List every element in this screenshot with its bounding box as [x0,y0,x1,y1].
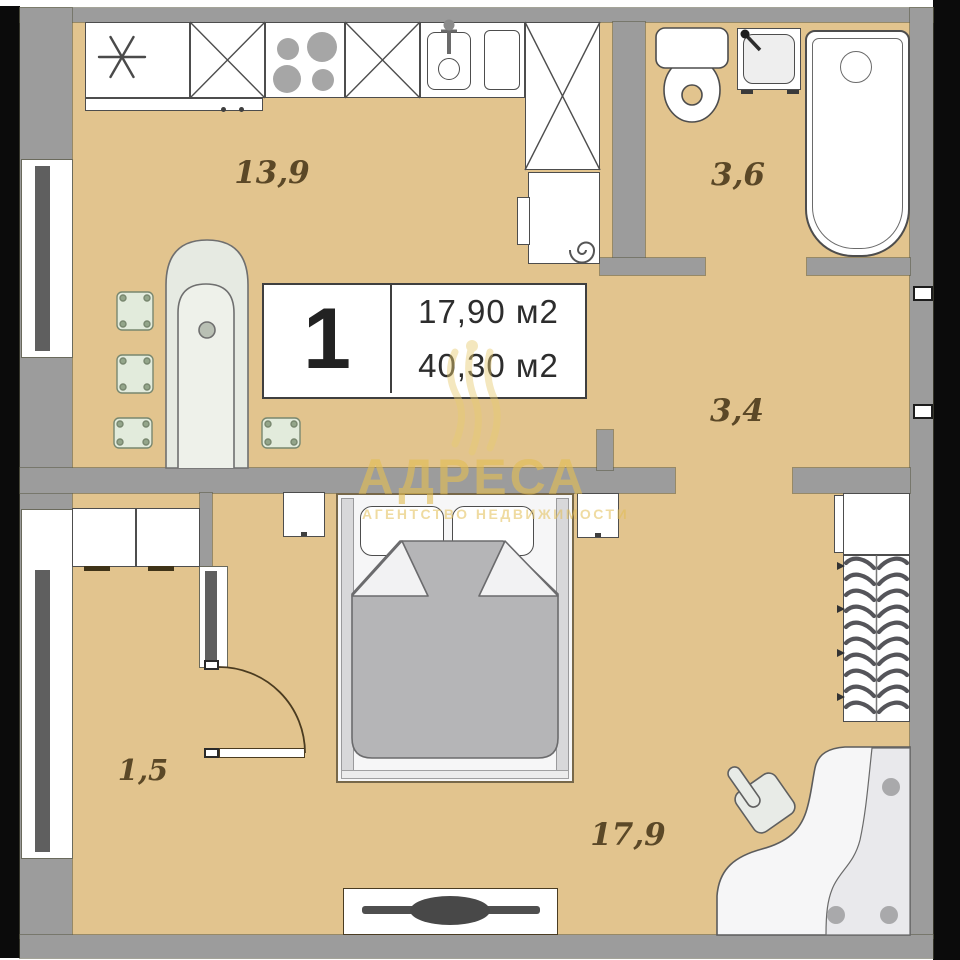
washing-machine [528,172,600,264]
counter-handle [221,107,226,112]
door-leaf [219,748,305,758]
room-label-balcony: 1,5 [118,753,168,787]
wardrobe-shelf [843,493,910,555]
wall-bath-stub-right [807,258,910,275]
balcony-cabinet [136,508,200,567]
stove-burner [277,38,299,60]
door-jamb [204,660,219,670]
room-label-bathroom: 3,6 [711,157,765,193]
wall-balcony-stub [200,493,212,567]
wall-hatch [913,286,933,301]
stove-burner [312,69,334,91]
nightstand-right [577,493,619,538]
nightstand-handle [595,533,601,537]
kitchen-sink-drain [438,58,460,80]
total-area-value: 40,30 м2 [392,339,585,393]
wardrobe-hanger-section [843,555,910,722]
bed-rail-left [341,498,354,778]
balcony-cabinet [72,508,136,567]
wall-hatch [913,404,933,419]
wall-kitchen-bath-divider [613,22,645,260]
kitchen-counter-strip [85,98,263,111]
stove-burner [273,65,301,93]
door-jamb [204,748,219,758]
kitchen-cabinet-3 [484,30,520,90]
room-label-hallway: 3,4 [710,393,764,429]
unit-info-card: 1 17,90 м2 40,30 м2 [262,283,587,399]
photo-edge-right [933,0,960,960]
wall-middle-left [20,468,675,493]
nightstand-left [283,492,325,537]
floor-plan: 13,9 3,6 3,4 1,5 17,9 1 17,90 м2 40,30 м… [0,0,960,960]
wall-right [910,8,933,938]
kitchen-door-leaf [517,197,530,245]
kitchen-window-frame [35,166,50,351]
balcony-partition-window-frame [205,571,217,663]
bathtub-drain [840,51,872,83]
pillow [452,506,534,556]
fridge [85,22,190,98]
pillow [360,506,444,556]
tv [410,896,490,925]
stove-burner [307,32,337,62]
wall-bath-stub-left [600,258,705,275]
living-area-value: 17,90 м2 [392,285,585,339]
cabinet-handle [148,566,174,571]
balcony-window-frame [35,570,50,852]
wall-middle-right [793,468,910,493]
photo-edge-left [0,6,20,958]
counter-handle [239,107,244,112]
cabinet-handle [84,566,110,571]
bed-rail-right [556,498,569,778]
room-label-bedroom: 17,9 [590,817,666,853]
kitchen-cabinet-1 [190,22,265,98]
wardrobe-door [834,495,844,553]
bed-foot-board [341,770,569,779]
tall-cabinet [525,22,600,170]
wall-hall-stub [597,430,613,470]
bathroom-sink-basin [743,34,795,84]
kitchen-cabinet-2 [345,22,420,98]
room-label-kitchen-living: 13,9 [234,155,310,191]
nightstand-handle [301,532,307,536]
wall-bottom [20,935,933,958]
rooms-count: 1 [264,285,392,393]
wall-top [20,8,933,22]
